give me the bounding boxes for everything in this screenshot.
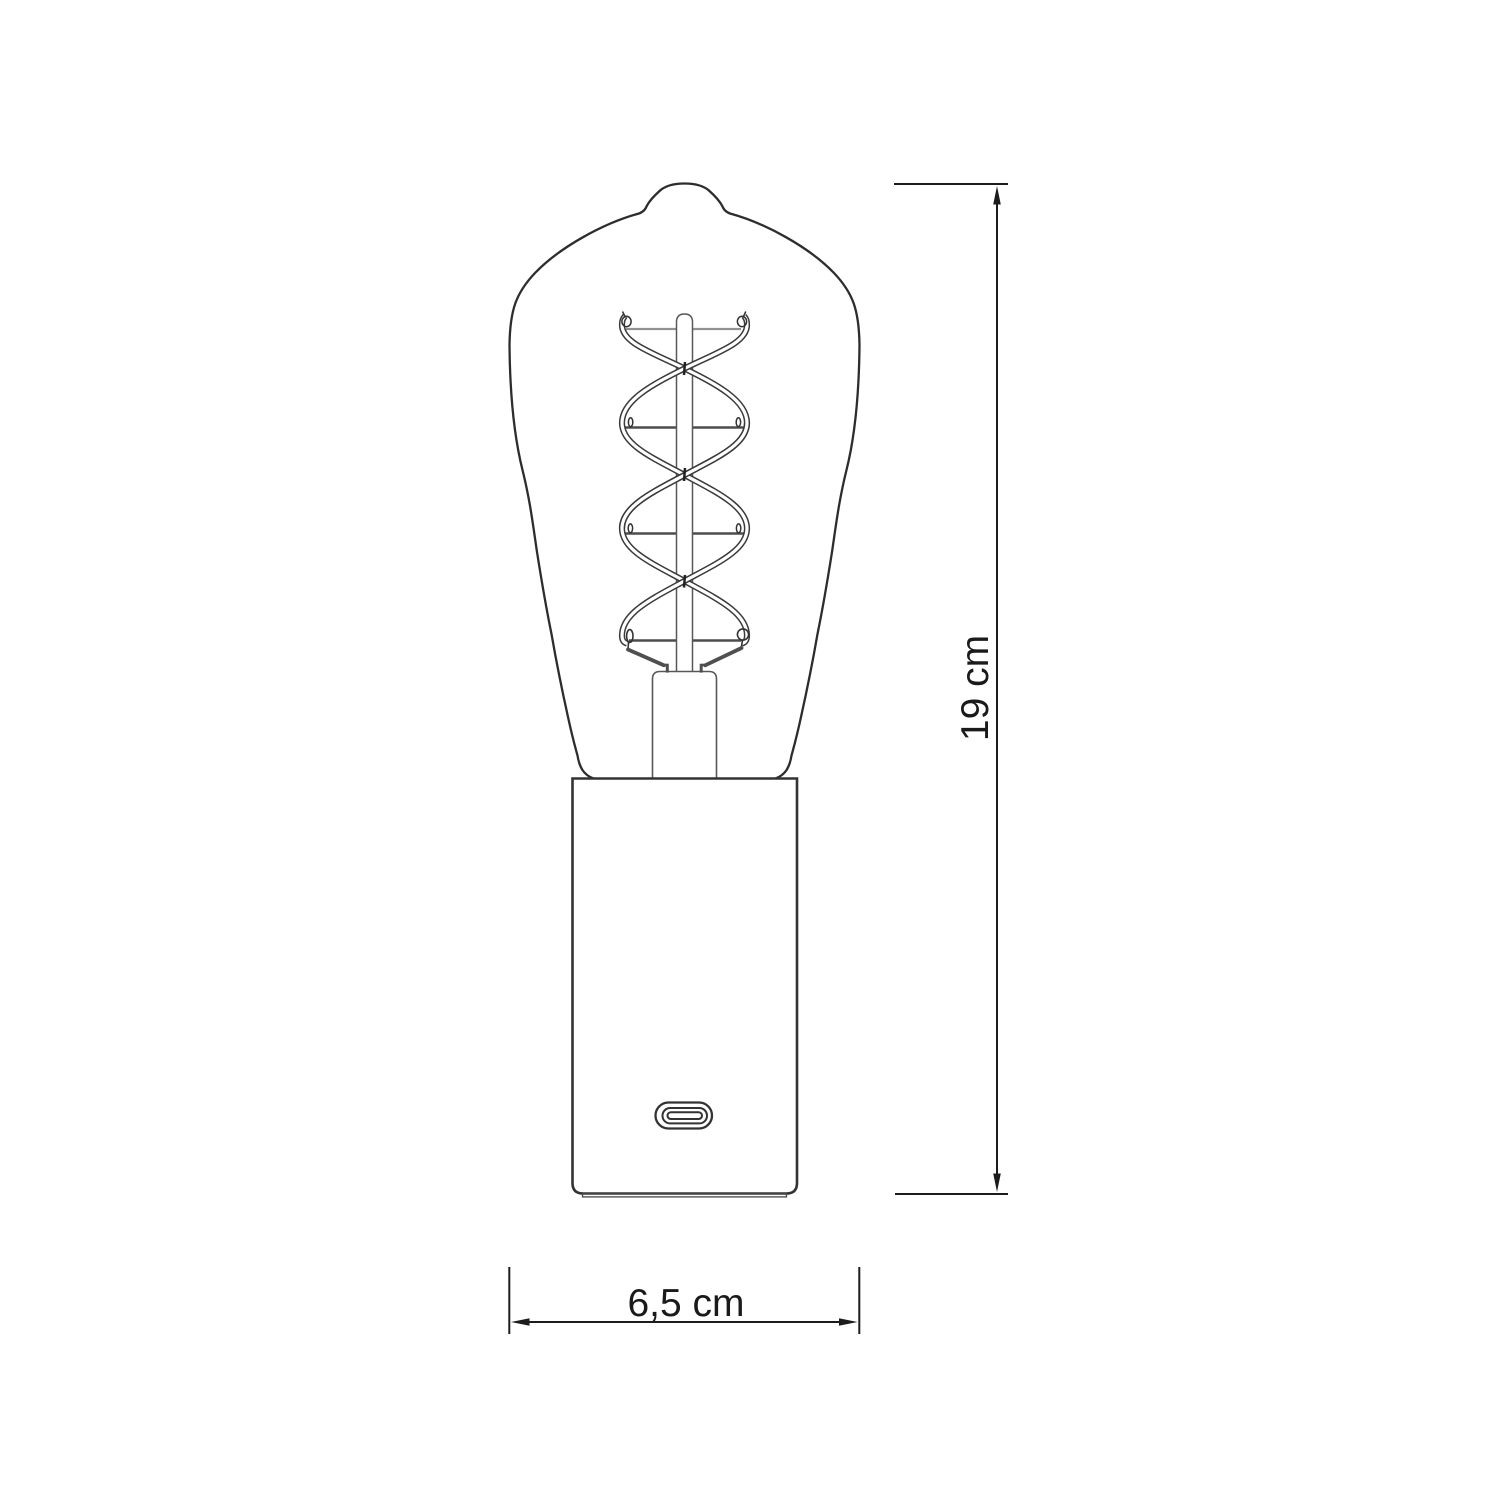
svg-text:19 cm: 19 cm <box>954 635 997 741</box>
svg-text:6,5 cm: 6,5 cm <box>627 1282 744 1325</box>
